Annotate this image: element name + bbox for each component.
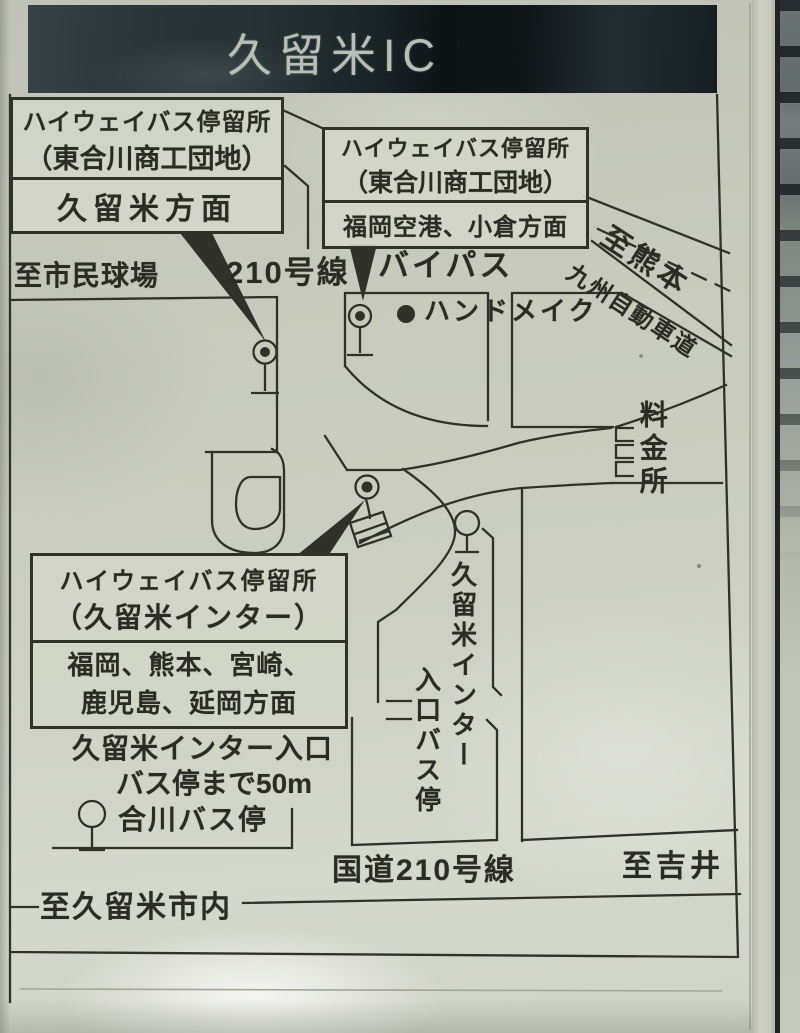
bus-stop-icon-inter-entrance	[455, 511, 479, 552]
label-entrance-stop-col2: 入口バス停	[412, 666, 441, 841]
side-street-stubs	[387, 701, 411, 719]
background-structure-rungs	[780, 0, 800, 560]
poi-dot-icon	[397, 305, 415, 323]
road-east-edge	[522, 483, 613, 841]
photo-speckle	[639, 354, 643, 358]
bus-stop-box-fukuoka-kokura: ハイウェイバス停留所 （東合川商工団地） 福岡空港、小倉方面	[322, 127, 589, 249]
photo-speckle	[697, 564, 701, 568]
box-destination-line2: 鹿児島、延岡方面	[81, 685, 297, 723]
ramp-to-expressway	[616, 385, 726, 427]
road-loop-ramp	[212, 449, 284, 553]
box-subtitle: （東合川商工団地）	[26, 137, 269, 176]
label-toll-gate: 料金所	[636, 400, 667, 520]
box-title: ハイウェイバス停留所	[22, 102, 271, 137]
sign-photo: 久留米IC	[0, 0, 800, 1033]
bus-stop-icon-aikawa	[79, 801, 105, 850]
box-destination-line1: 福岡、熊本、宮崎、	[67, 647, 310, 685]
road-between-boxes	[285, 111, 322, 248]
label-bypass: バイパス	[378, 249, 513, 283]
label-entrance-note-2: バス停まで50m	[116, 769, 312, 800]
label-to-yoshii: 至吉井	[622, 850, 724, 883]
label-national-route-210: 国道210号線	[332, 854, 516, 887]
callout-pointer-box3	[296, 500, 365, 556]
box-destination: 久留米方面	[57, 184, 237, 228]
photo-bottom-shadow	[0, 1000, 752, 1033]
national-route-upper-edge	[522, 830, 737, 840]
bus-stop-box-kurume-inter: ハイウェイバス停留所 （久留米インター） 福岡、熊本、宮崎、 鹿児島、延岡方面	[30, 553, 348, 729]
road-entrance-east-edge	[483, 529, 501, 695]
label-aikawa-bus-stop: 合川バス停	[118, 805, 268, 836]
bus-stop-icon-fukuoka-kokura	[347, 305, 373, 355]
label-handmade-poi: ハンドメイク	[424, 297, 597, 326]
road-block-northwest	[10, 297, 277, 452]
toll-booth-icon	[616, 428, 634, 476]
label-entrance-note-1: 久留米インター入口	[72, 734, 333, 765]
bus-stop-icon-kurume-homen	[251, 341, 279, 394]
label-route-210: 210号線	[226, 256, 350, 290]
box-destination: 福岡空港、小倉方面	[343, 207, 568, 242]
label-entrance-stop-col1: 久留米インター	[448, 561, 477, 806]
bus-stop-box-kurume-homen: ハイウェイバス停留所 （東合川商工団地） 久留米方面	[10, 97, 284, 234]
label-to-stadium: 至市民球場	[14, 261, 159, 292]
background-structure	[780, 0, 800, 1033]
box-subtitle: （東合川商工団地）	[343, 163, 568, 199]
box-subtitle: （久留米インター）	[54, 596, 324, 636]
sign-frame-right	[752, 0, 775, 1033]
ramp-upper-edge	[325, 428, 611, 470]
label-to-kurume-city: 至久留米市内	[40, 891, 232, 924]
road-loop-island	[236, 477, 280, 529]
box-title: ハイウェイバス停留所	[341, 131, 570, 163]
box-title: ハイウェイバス停留所	[59, 561, 318, 596]
